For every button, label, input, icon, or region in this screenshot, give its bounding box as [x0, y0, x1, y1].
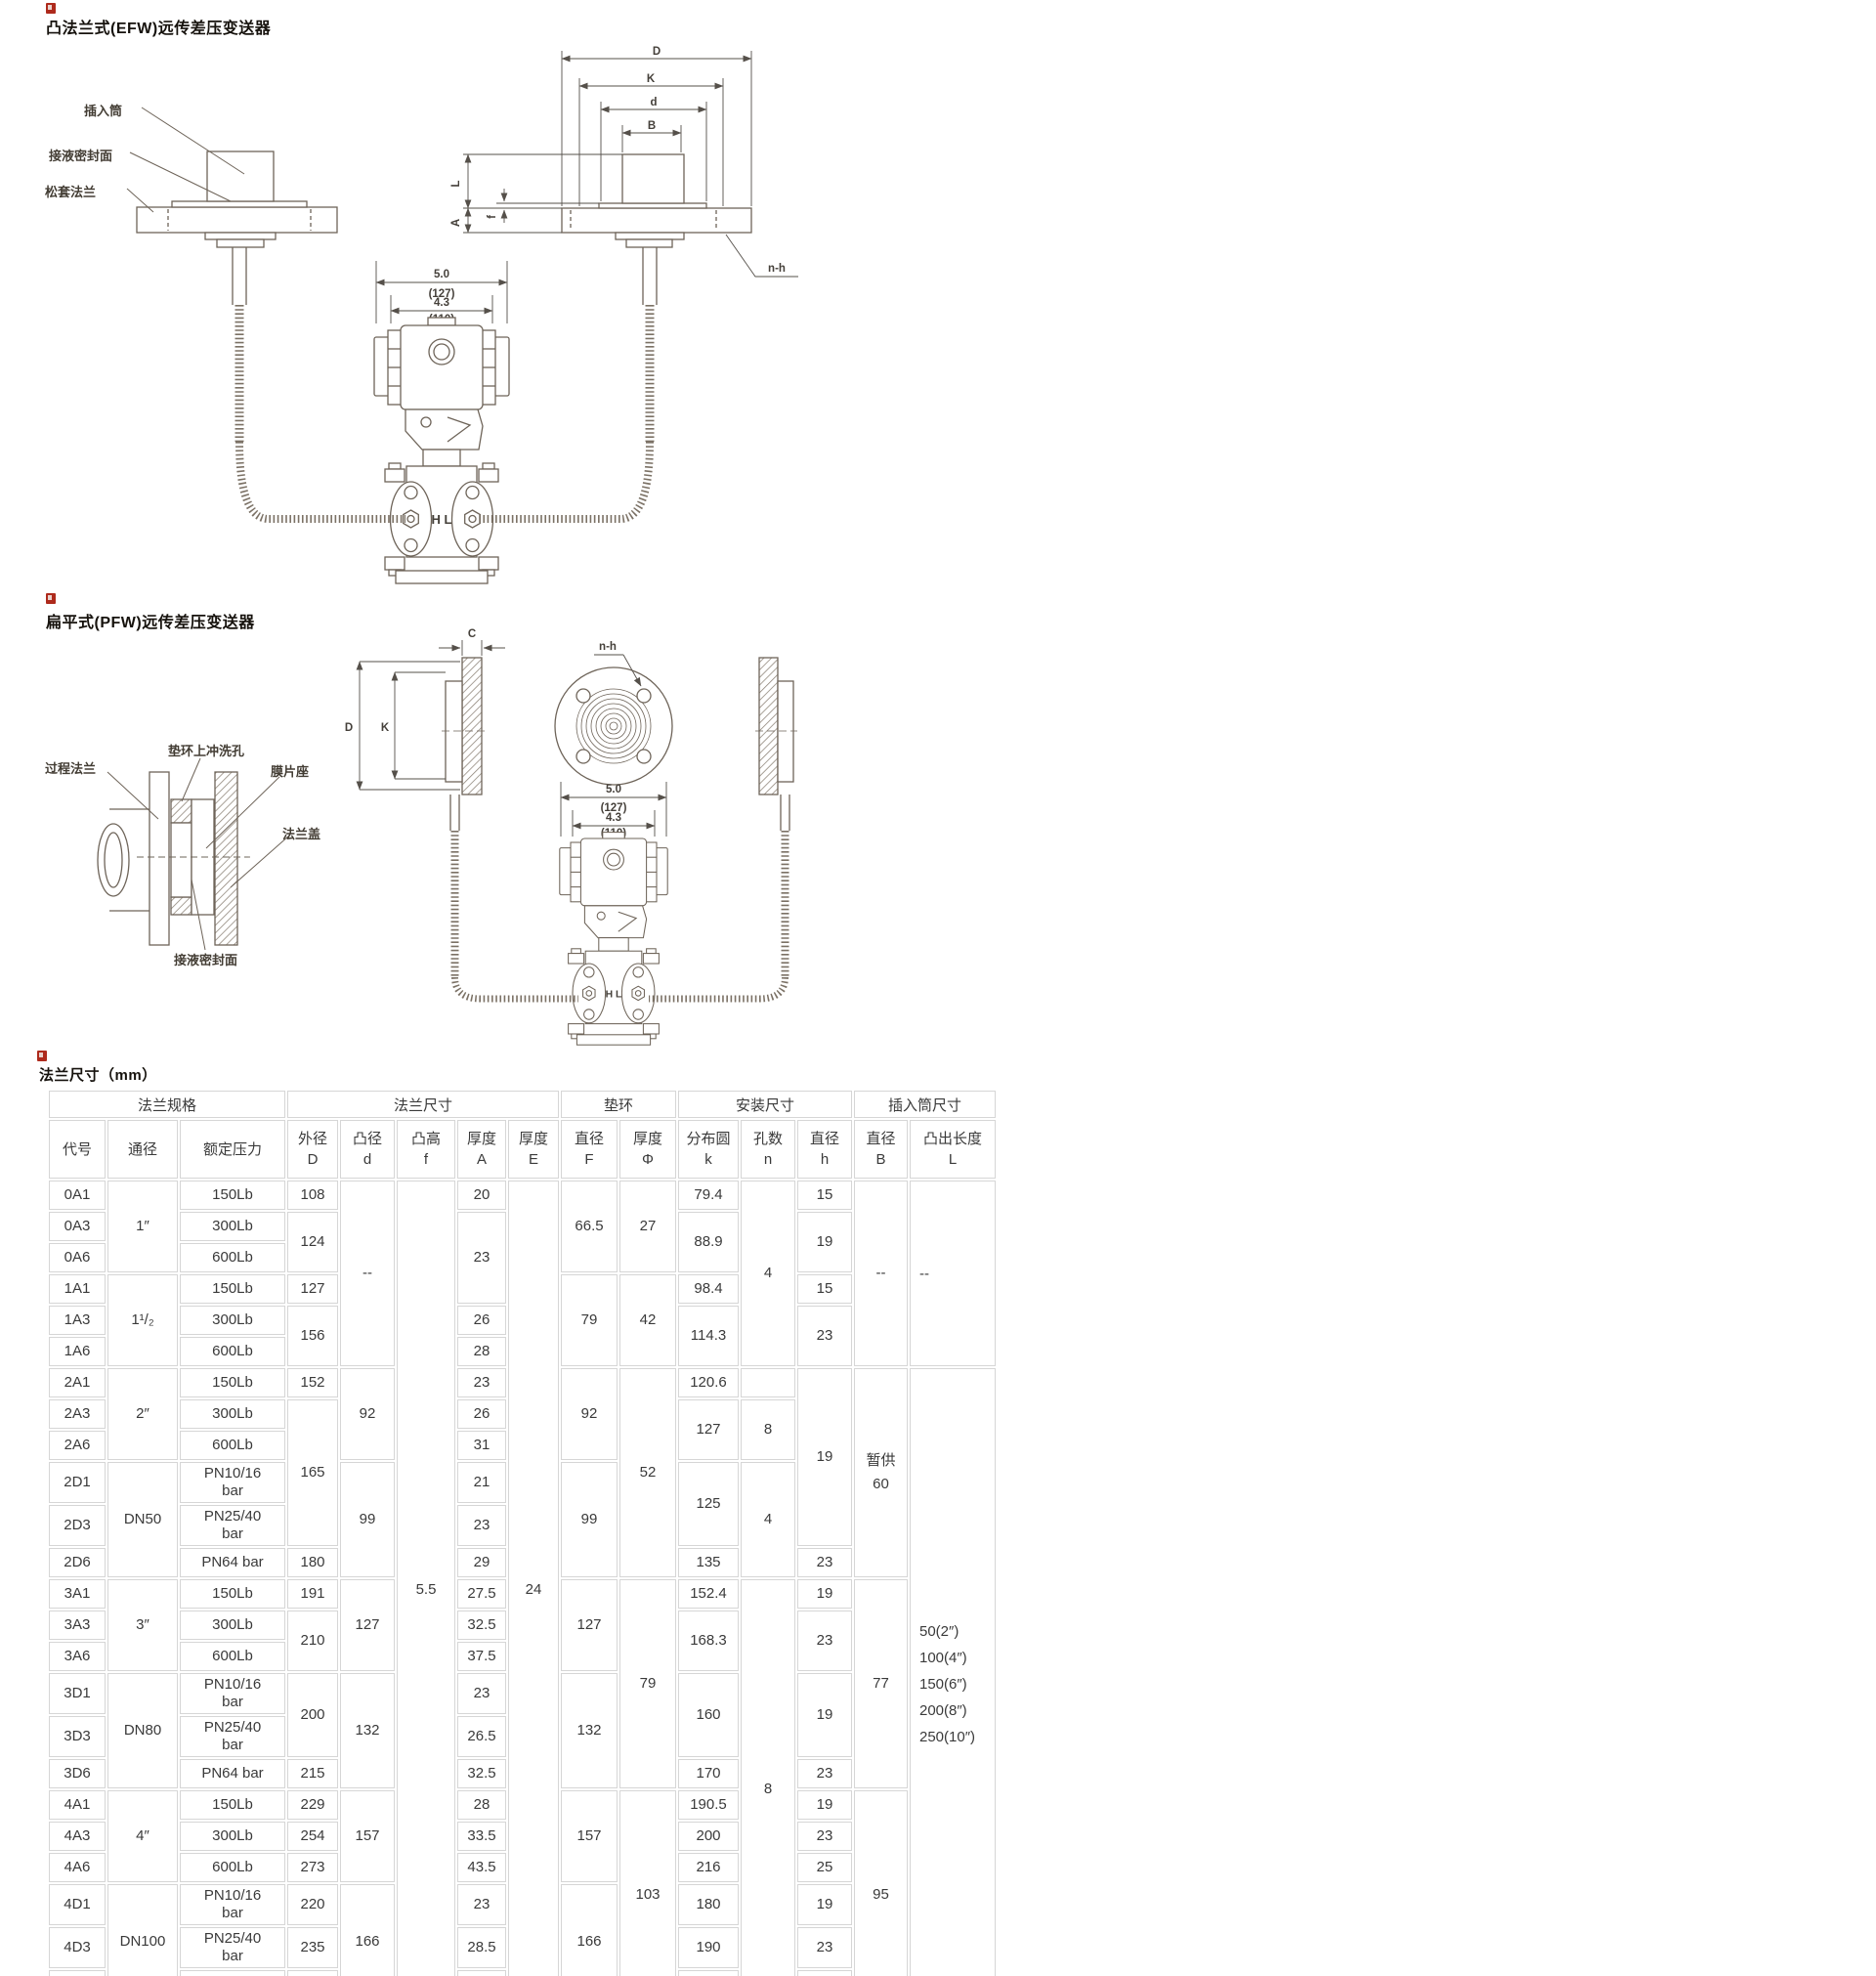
table-cell: 220 — [287, 1884, 338, 1925]
table-cell: 150Lb — [180, 1181, 285, 1210]
table-cell: 127 — [340, 1579, 395, 1671]
column-group-header: 安装尺寸 — [678, 1091, 852, 1118]
table-cell: 3D1 — [49, 1673, 106, 1714]
table-cell: 127 — [561, 1579, 618, 1671]
table-cell: 23 — [457, 1212, 506, 1304]
table-cell: 4A6 — [49, 1853, 106, 1882]
table-cell: PN64 bar — [180, 1970, 285, 1976]
table-body: 0A11″150Lb108--5.5202466.52779.4415----0… — [49, 1181, 996, 1976]
table-cell: 125 — [678, 1462, 739, 1546]
column-header: 额定压力 — [180, 1120, 285, 1179]
column-header: 凸径 d — [340, 1120, 395, 1179]
table-cell: 1¹/₂ — [107, 1274, 178, 1366]
table-cell: 150Lb — [180, 1579, 285, 1609]
table-cell: 160 — [678, 1673, 739, 1757]
table-cell: PN10/16 bar — [180, 1462, 285, 1503]
table-cell: PN25/40 bar — [180, 1716, 285, 1757]
datasheet-page: H L — [0, 0, 1876, 1976]
column-header: 凸高 f — [397, 1120, 455, 1179]
table-cell: 28 — [457, 1337, 506, 1366]
column-group-header: 法兰尺寸 — [287, 1091, 559, 1118]
table-cell: 3A3 — [49, 1611, 106, 1640]
table-cell: 28 — [457, 1790, 506, 1820]
table-cell: 273 — [287, 1853, 338, 1882]
table-cell: 152.4 — [678, 1579, 739, 1609]
table-cell: 79 — [561, 1274, 618, 1366]
table-cell: 3D6 — [49, 1759, 106, 1788]
table-title: 法兰尺寸（mm） — [39, 1064, 157, 1085]
table-cell: -- — [910, 1181, 996, 1366]
column-group-header: 垫环 — [561, 1091, 676, 1118]
table-cell: 26 — [457, 1306, 506, 1335]
table-cell: 4D1 — [49, 1884, 106, 1925]
width2-inch2-label: 4.3 — [606, 812, 621, 824]
table-cell: 190.5 — [678, 1790, 739, 1820]
table-cell: 27.5 — [457, 1579, 506, 1609]
table-cell: 28.5 — [457, 1927, 506, 1968]
table-cell: 8 — [741, 1399, 795, 1460]
table-cell: 23 — [797, 1822, 852, 1851]
table-cell: -- — [340, 1181, 395, 1366]
table-cell: 15 — [797, 1181, 852, 1210]
efw-dimensions — [376, 51, 798, 323]
dim-f-label: f — [487, 215, 498, 219]
width2-inch-label: 4.3 — [434, 297, 449, 309]
table-cell: 4A1 — [49, 1790, 106, 1820]
table-cell: 99 — [340, 1462, 395, 1577]
table-cell: 27 — [619, 1181, 676, 1272]
table-cell: 23 — [797, 1927, 852, 1968]
table-cell: 3A6 — [49, 1642, 106, 1671]
table-cell: 200 — [678, 1822, 739, 1851]
table-cell: 23 — [797, 1611, 852, 1671]
table-cell: 25 — [797, 1853, 852, 1882]
table-cell: 27 — [797, 1970, 852, 1976]
table-cell: 135 — [678, 1548, 739, 1577]
column-header: 厚度 Φ — [619, 1120, 676, 1179]
table-cell: PN64 bar — [180, 1548, 285, 1577]
width-inch2-label: 5.0 — [606, 784, 621, 795]
table-cell: 43.5 — [457, 1853, 506, 1882]
table-cell: 229 — [287, 1790, 338, 1820]
table-cell: 24 — [508, 1181, 559, 1976]
table-cell: 95 — [854, 1790, 908, 1976]
dim-K2-label: K — [381, 722, 390, 734]
table-cell: 23 — [797, 1548, 852, 1577]
table-cell: 23 — [797, 1306, 852, 1366]
label-diaphragm-seat: 膜片座 — [271, 761, 309, 780]
dim-nh2-label: n-h — [599, 641, 617, 653]
table-cell: 166 — [561, 1884, 618, 1976]
table-cell: 120.6 — [678, 1368, 739, 1397]
table-cell: 103 — [619, 1790, 676, 1976]
table-cell: 8 — [741, 1579, 795, 1976]
column-header: 通径 — [107, 1120, 178, 1179]
table-cell: 31 — [457, 1431, 506, 1460]
table-cell: 300Lb — [180, 1611, 285, 1640]
table-cell: PN25/40 bar — [180, 1505, 285, 1546]
table-cell: 88.9 — [678, 1212, 739, 1272]
table-cell: 19 — [797, 1212, 852, 1272]
table-cell: PN10/16 bar — [180, 1673, 285, 1714]
table-cell: 37.5 — [457, 1642, 506, 1671]
table-cell — [741, 1368, 795, 1397]
section2-bullet-icon — [46, 593, 56, 604]
section1-bullet-icon — [46, 3, 56, 14]
label-loose-flange: 松套法兰 — [45, 182, 96, 200]
technical-drawings: H L — [0, 0, 1876, 1067]
table-cell: 300Lb — [180, 1822, 285, 1851]
table-cell: 4 — [741, 1462, 795, 1577]
table-cell: 215 — [287, 1759, 338, 1788]
table-cell: 114.3 — [678, 1306, 739, 1366]
table-row: 0A11″150Lb108--5.5202466.52779.4415---- — [49, 1181, 996, 1210]
table-cell: 98.4 — [678, 1274, 739, 1304]
dim-nh-label: n-h — [768, 263, 786, 275]
table-cell: 0A6 — [49, 1243, 106, 1272]
label-wetted-seal-face2: 接液密封面 — [174, 950, 237, 968]
pfw-front-view — [555, 667, 672, 785]
table-cell: 132 — [340, 1673, 395, 1788]
table-cell: 300Lb — [180, 1212, 285, 1241]
column-header: 代号 — [49, 1120, 106, 1179]
table-cell: 156 — [287, 1306, 338, 1366]
table-cell: 180 — [287, 1548, 338, 1577]
column-header: 分布圆 k — [678, 1120, 739, 1179]
dim-B-label: B — [648, 120, 656, 132]
label-wetted-seal-face: 接液密封面 — [49, 146, 112, 164]
table-cell: 1A6 — [49, 1337, 106, 1366]
table-cell: 157 — [340, 1790, 395, 1882]
table-cell: 250 — [287, 1970, 338, 1976]
table-cell: 1A1 — [49, 1274, 106, 1304]
table-cell: 108 — [287, 1181, 338, 1210]
table-cell: 600Lb — [180, 1243, 285, 1272]
efw-left-flange — [137, 151, 337, 305]
table-cell: 1A3 — [49, 1306, 106, 1335]
table-cell: 42 — [619, 1274, 676, 1366]
table-cell: 150Lb — [180, 1274, 285, 1304]
table-cell: DN50 — [107, 1462, 178, 1577]
table-cell: 99 — [561, 1462, 618, 1577]
table-cell: 32.5 — [457, 1759, 506, 1788]
table-cell: 600Lb — [180, 1431, 285, 1460]
table-cell: 0A3 — [49, 1212, 106, 1241]
table-cell: 19 — [797, 1790, 852, 1820]
table-cell: 33.5 — [457, 1822, 506, 1851]
dim-D-label: D — [653, 46, 661, 58]
table-cell: 4 — [741, 1181, 795, 1366]
column-header: 直径 h — [797, 1120, 852, 1179]
table-cell: 2A1 — [49, 1368, 106, 1397]
dim-C-label: C — [468, 628, 476, 640]
table-cell: 19 — [797, 1368, 852, 1546]
column-header: 厚度 A — [457, 1120, 506, 1179]
table-cell: DN100 — [107, 1884, 178, 1976]
section2-title: 扁平式(PFW)远传差压变送器 — [46, 609, 255, 632]
table-cell: 2D6 — [49, 1548, 106, 1577]
column-header: 直径 B — [854, 1120, 908, 1179]
table-cell: 166 — [340, 1884, 395, 1976]
table-cell: 暂供 60 — [854, 1368, 908, 1577]
pfw-detail-view — [98, 758, 289, 950]
table-cell: 300Lb — [180, 1306, 285, 1335]
table-cell: 200 — [678, 1970, 739, 1976]
table-cell: 26 — [457, 1399, 506, 1429]
label-insert-cylinder: 插入筒 — [84, 101, 122, 119]
table-cell: 2A6 — [49, 1431, 106, 1460]
width-inch-label: 5.0 — [434, 269, 449, 280]
dim-D2-label: D — [345, 722, 353, 734]
table-cell: 150Lb — [180, 1368, 285, 1397]
table-cell: 300Lb — [180, 1399, 285, 1429]
table-cell: 19 — [797, 1884, 852, 1925]
table-cell: 92 — [340, 1368, 395, 1460]
table-cell: DN80 — [107, 1673, 178, 1788]
table-cell: 210 — [287, 1611, 338, 1671]
table-cell: 4A3 — [49, 1822, 106, 1851]
table-cell: 92 — [561, 1368, 618, 1460]
table-cell: 4″ — [107, 1790, 178, 1882]
table-cell: 127 — [287, 1274, 338, 1304]
table-cell: 180 — [678, 1884, 739, 1925]
table-cell: 2″ — [107, 1368, 178, 1460]
table-cell: 50(2″) 100(4″) 150(6″) 200(8″) 250(10″) — [910, 1368, 996, 1976]
table-cell: 4D6 — [49, 1970, 106, 1976]
table-cell: 124 — [287, 1212, 338, 1272]
table-cell: 23 — [457, 1673, 506, 1714]
column-header: 凸出长度 L — [910, 1120, 996, 1179]
table-cell: 127 — [678, 1399, 739, 1460]
flange-table: 法兰规格法兰尺寸垫环安装尺寸插入筒尺寸代号通径额定压力外径 D凸径 d凸高 f厚… — [47, 1089, 998, 1976]
table-cell: 29 — [457, 1548, 506, 1577]
table-cell: 157 — [561, 1790, 618, 1882]
table-cell: 3A1 — [49, 1579, 106, 1609]
dim-K-label: K — [647, 73, 656, 85]
table-cell: PN25/40 bar — [180, 1927, 285, 1968]
table-cell: 600Lb — [180, 1642, 285, 1671]
label-flange-cover: 法兰盖 — [282, 824, 320, 842]
table-cell: 21 — [457, 1462, 506, 1503]
table-cell: 0A1 — [49, 1181, 106, 1210]
table-cell: 600Lb — [180, 1853, 285, 1882]
table-cell: 4D3 — [49, 1927, 106, 1968]
table-cell: 190 — [678, 1927, 739, 1968]
table-cell: 235 — [287, 1927, 338, 1968]
table-cell: 19 — [797, 1673, 852, 1757]
table-cell: -- — [854, 1181, 908, 1366]
table-cell: 2D1 — [49, 1462, 106, 1503]
table-cell: 19 — [797, 1579, 852, 1609]
table-cell: 168.3 — [678, 1611, 739, 1671]
table-cell: 52 — [619, 1368, 676, 1577]
column-group-header: 法兰规格 — [49, 1091, 285, 1118]
table-cell: 79.4 — [678, 1181, 739, 1210]
column-header: 厚度 E — [508, 1120, 559, 1179]
table-cell: 200 — [287, 1673, 338, 1757]
column-group-header: 插入筒尺寸 — [854, 1091, 996, 1118]
table-cell: 26.5 — [457, 1716, 506, 1757]
table-cell: PN64 bar — [180, 1759, 285, 1788]
table-cell: 66.5 — [561, 1181, 618, 1272]
section3-bullet-icon — [37, 1051, 47, 1061]
table-cell: 2D3 — [49, 1505, 106, 1546]
column-header: 直径 F — [561, 1120, 618, 1179]
column-header: 外径 D — [287, 1120, 338, 1179]
table-cell: 23 — [457, 1505, 506, 1546]
table-cell: 23 — [457, 1884, 506, 1925]
table-cell: 216 — [678, 1853, 739, 1882]
table-cell: 2A3 — [49, 1399, 106, 1429]
label-flush-hole: 垫环上冲洗孔 — [168, 741, 244, 759]
section1-title: 凸法兰式(EFW)远传差压变送器 — [46, 15, 271, 38]
table-cell: 170 — [678, 1759, 739, 1788]
table-cell: 20 — [457, 1181, 506, 1210]
table-cell: 191 — [287, 1579, 338, 1609]
table-cell: 79 — [619, 1579, 676, 1788]
table-cell: 254 — [287, 1822, 338, 1851]
column-header: 孔数 n — [741, 1120, 795, 1179]
table-cell: PN10/16 bar — [180, 1884, 285, 1925]
table-cell: 77 — [854, 1579, 908, 1788]
table-cell: 165 — [287, 1399, 338, 1546]
table-cell: 150Lb — [180, 1790, 285, 1820]
table-cell: 132 — [561, 1673, 618, 1788]
table-cell: 5.5 — [397, 1181, 455, 1976]
table-cell: 1″ — [107, 1181, 178, 1272]
table-cell: 32.5 — [457, 1611, 506, 1640]
label-process-flange: 过程法兰 — [45, 758, 96, 777]
table-cell: 3D3 — [49, 1716, 106, 1757]
table-cell: 34.5 — [457, 1970, 506, 1976]
table-cell: 23 — [457, 1368, 506, 1397]
table-cell: 600Lb — [180, 1337, 285, 1366]
table-cell: 3″ — [107, 1579, 178, 1671]
dim-A-label: A — [450, 219, 462, 227]
table-cell: 23 — [797, 1759, 852, 1788]
table-cell: 15 — [797, 1274, 852, 1304]
dim-L-label: L — [450, 180, 462, 187]
table-cell: 152 — [287, 1368, 338, 1397]
dim-d-label: d — [650, 97, 657, 108]
table-head: 法兰规格法兰尺寸垫环安装尺寸插入筒尺寸代号通径额定压力外径 D凸径 d凸高 f厚… — [49, 1091, 996, 1179]
